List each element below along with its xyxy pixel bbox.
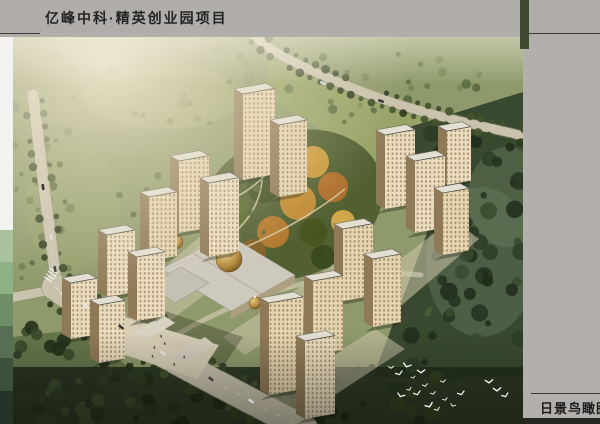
- aerial-rendering: [13, 37, 523, 424]
- header-rule-left: [0, 33, 40, 34]
- header-bar: 亿峰中科·精英创业园项目: [0, 0, 600, 33]
- aerial-rendering-canvas: [13, 37, 523, 424]
- color-strip-block: [0, 358, 13, 391]
- project-title: 亿峰中科·精英创业园项目: [45, 8, 228, 28]
- color-scale-strip: [0, 37, 13, 424]
- color-strip-block: [0, 326, 13, 358]
- atmosphere-haze: [13, 37, 523, 424]
- right-margin-panel: [523, 37, 600, 424]
- color-strip-block: [0, 262, 13, 294]
- footer-bottom-border: [523, 418, 600, 424]
- header-rule-right: [529, 33, 600, 34]
- color-strip-block: [0, 37, 13, 230]
- presentation-board: 亿峰中科·精英创业园项目 日景鸟瞰图: [0, 0, 600, 424]
- color-strip-block: [0, 294, 13, 326]
- footer-rule: [531, 393, 600, 394]
- header-accent-bar: [520, 0, 529, 49]
- view-caption: 日景鸟瞰图: [540, 398, 600, 417]
- color-strip-block: [0, 230, 13, 262]
- color-strip-block: [0, 391, 13, 424]
